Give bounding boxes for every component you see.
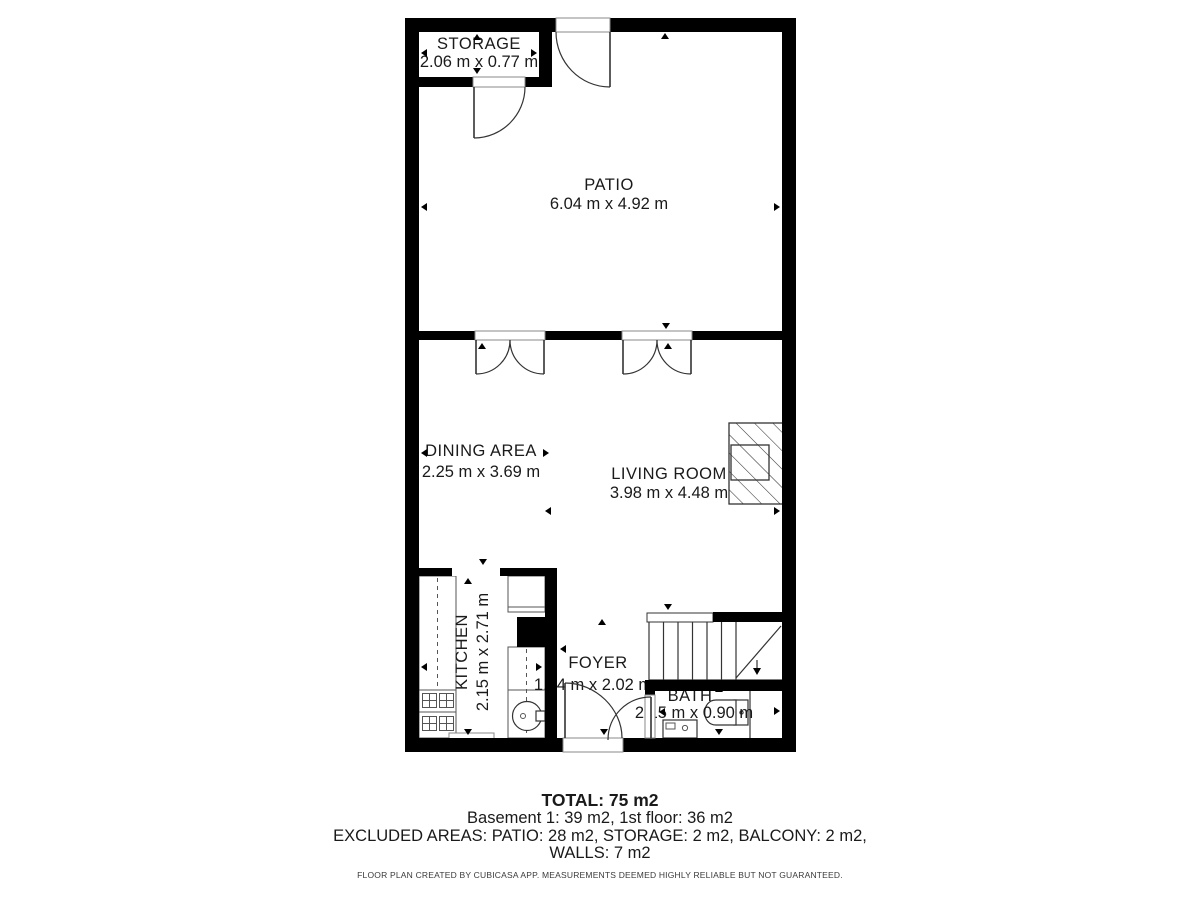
floor-plan-page: STORAGE 2.06 m x 0.77 m PATIO 6.04 m x 4… [0, 0, 1200, 900]
storage-door [473, 77, 525, 138]
summary-disclaimer: FLOOR PLAN CREATED BY CUBICASA APP. MEAS… [357, 870, 843, 880]
kitchen-counter-left [419, 576, 456, 690]
fireplace-symbol [729, 423, 784, 504]
summary-excluded: EXCLUDED AREAS: PATIO: 28 m2, STORAGE: 2… [333, 827, 867, 845]
svg-text:DINING AREA: DINING AREA [425, 442, 537, 460]
french-door-dining [475, 331, 545, 374]
room-label-storage: STORAGE 2.06 m x 0.77 m [420, 35, 538, 71]
french-door-living [622, 331, 692, 374]
svg-text:2.15 m x 2.71 m: 2.15 m x 2.71 m [474, 593, 492, 711]
room-label-kitchen: KITCHEN 2.15 m x 2.71 m [453, 593, 492, 711]
svg-text:6.04 m x 4.92 m: 6.04 m x 4.92 m [550, 195, 668, 213]
kitchen-sink-symbol [513, 702, 546, 731]
room-label-dining-area: DINING AREA 2.25 m x 3.69 m [422, 442, 540, 481]
bath-sink-symbol [663, 720, 697, 738]
svg-text:LIVING ROOM: LIVING ROOM [611, 465, 727, 483]
summary-block: TOTAL: 75 m2 Basement 1: 39 m2, 1st floo… [333, 790, 867, 880]
patio-top-door [556, 18, 610, 87]
svg-text:3.98 m x 4.48 m: 3.98 m x 4.48 m [610, 484, 728, 502]
svg-text:2.25 m x 3.69 m: 2.25 m x 3.69 m [422, 463, 540, 481]
staircase-symbol [647, 613, 782, 680]
room-label-living-room: LIVING ROOM 3.98 m x 4.48 m [610, 465, 728, 502]
summary-floors: Basement 1: 39 m2, 1st floor: 36 m2 [467, 809, 733, 827]
floor-plan-svg: STORAGE 2.06 m x 0.77 m PATIO 6.04 m x 4… [0, 0, 1200, 900]
summary-walls: WALLS: 7 m2 [549, 844, 650, 862]
room-label-patio: PATIO 6.04 m x 4.92 m [550, 176, 668, 213]
stair-direction-arrow [753, 668, 761, 675]
chimney-block [517, 617, 545, 647]
svg-text:PATIO: PATIO [584, 176, 634, 194]
stair-rail [647, 613, 713, 622]
summary-total: TOTAL: 75 m2 [541, 790, 658, 810]
kitchen-opening [452, 568, 500, 576]
bath-door [608, 695, 655, 740]
svg-text:KITCHEN: KITCHEN [453, 614, 471, 690]
svg-text:FOYER: FOYER [568, 654, 627, 672]
stove-symbol [419, 690, 456, 738]
